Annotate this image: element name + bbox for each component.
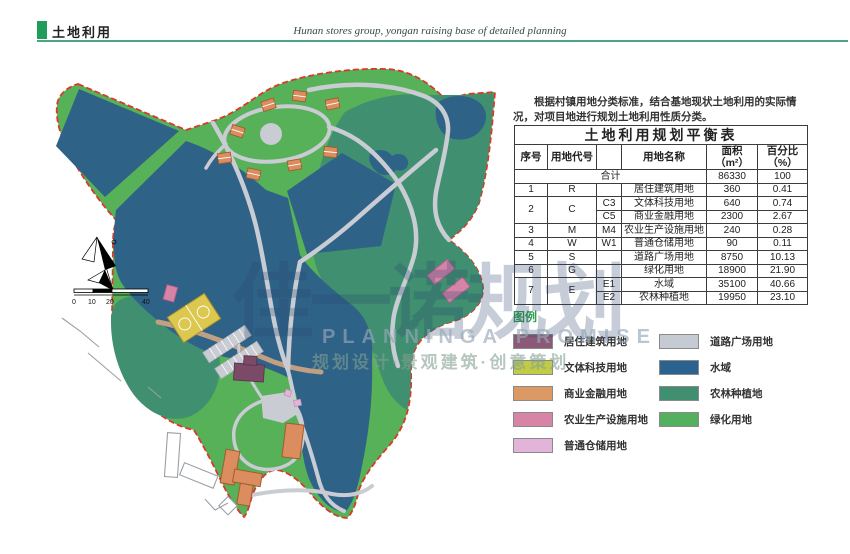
table-cell: 2 — [515, 197, 548, 224]
table-cell: E — [548, 278, 597, 305]
legend-label: 普通仓储用地 — [564, 438, 627, 453]
table-cell: 100 — [758, 170, 808, 184]
legend-swatch — [513, 412, 553, 427]
legend-title: 图例 — [513, 308, 537, 325]
legend-item: 农林种植地 — [659, 380, 773, 406]
table-cell: 640 — [707, 197, 758, 211]
table-cell: 40.66 — [758, 278, 808, 292]
table-cell: 10.13 — [758, 251, 808, 265]
table-cell: 道路广场用地 — [622, 251, 707, 265]
plaza-circle — [260, 123, 282, 145]
legend-label: 文体科技用地 — [564, 360, 627, 375]
balance-table: 土地利用规划平衡表序号用地代号用地名称面积（m²）百分比 （%）合计863301… — [514, 125, 808, 305]
legend-swatch — [659, 360, 699, 375]
table-cell: M — [548, 224, 597, 238]
legend-label: 农业生产设施用地 — [564, 412, 648, 427]
page-title: 土地利用 — [52, 22, 112, 41]
table-cell: 21.90 — [758, 264, 808, 278]
legend-swatch — [513, 386, 553, 401]
table-row: 合计86330100 — [515, 170, 808, 184]
table-cell: 居住建筑用地 — [622, 183, 707, 197]
scale-label: 40 — [142, 299, 150, 306]
legend-label: 居住建筑用地 — [564, 334, 627, 349]
table-cell: 文体科技用地 — [622, 197, 707, 211]
table-cell: 5 — [515, 251, 548, 265]
legend-item: 道路广场用地 — [659, 328, 773, 354]
table-cell: 合计 — [515, 170, 707, 184]
table-cell: 240 — [707, 224, 758, 238]
table-cell — [597, 264, 622, 278]
table-row: 3MM4农业生产设施用地2400.28 — [515, 224, 808, 238]
table-cell: 35100 — [707, 278, 758, 292]
legend-label: 水域 — [710, 360, 731, 375]
table-cell: G — [548, 264, 597, 278]
table-cell: C — [548, 197, 597, 224]
legend-item: 普通仓储用地 — [513, 432, 648, 458]
table-cell: 2300 — [707, 210, 758, 224]
legend-swatch — [659, 334, 699, 349]
legend-item: 农业生产设施用地 — [513, 406, 648, 432]
table-row: 7EE1水域3510040.66 — [515, 278, 808, 292]
table-cell — [597, 183, 622, 197]
table-cell: E1 — [597, 278, 622, 292]
column-header — [597, 145, 622, 170]
table-cell: 4 — [515, 237, 548, 251]
balance-table-grid: 土地利用规划平衡表序号用地代号用地名称面积（m²）百分比 （%）合计863301… — [514, 125, 808, 305]
scale-label: 10 — [88, 299, 96, 306]
table-cell: C3 — [597, 197, 622, 211]
legend-label: 绿化用地 — [710, 412, 752, 427]
column-header: 面积（m²） — [707, 145, 758, 170]
table-title: 土地利用规划平衡表 — [515, 126, 808, 145]
header-accent-square — [37, 21, 47, 39]
intro-paragraph: 根据村镇用地分类标准，结合基地现状土地利用的实际情况，对项目地进行规划土地利用性… — [513, 95, 805, 125]
table-row: 2CC3文体科技用地6400.74 — [515, 197, 808, 211]
header-rule — [37, 40, 848, 42]
legend-swatch — [513, 360, 553, 375]
legend-item: 居住建筑用地 — [513, 328, 648, 354]
table-cell: 农林种植地 — [622, 291, 707, 305]
legend-label: 农林种植地 — [710, 386, 763, 401]
legend-item: 绿化用地 — [659, 406, 773, 432]
column-header: 用地名称 — [622, 145, 707, 170]
scale-label: 20 — [106, 299, 114, 306]
table-cell: 90 — [707, 237, 758, 251]
table-row: 4WW1普通仓储用地900.11 — [515, 237, 808, 251]
table-cell: 18900 — [707, 264, 758, 278]
table-row: 5S道路广场用地875010.13 — [515, 251, 808, 265]
legend-swatch — [659, 412, 699, 427]
plan-sheet: { "header": { "title": "土地利用", "subtitle… — [0, 0, 850, 554]
legend-swatch — [513, 334, 553, 349]
table-cell: 水域 — [622, 278, 707, 292]
table-cell: 6 — [515, 264, 548, 278]
legend-swatch — [659, 386, 699, 401]
table-row: 6G绿化用地1890021.90 — [515, 264, 808, 278]
table-cell: 农业生产设施用地 — [622, 224, 707, 238]
column-header: 用地代号 — [548, 145, 597, 170]
table-cell: 19950 — [707, 291, 758, 305]
table-header-row: 序号用地代号用地名称面积（m²）百分比 （%） — [515, 145, 808, 170]
table-cell: R — [548, 183, 597, 197]
table-cell: 7 — [515, 278, 548, 305]
column-header: 序号 — [515, 145, 548, 170]
table-row: 1R居住建筑用地3600.41 — [515, 183, 808, 197]
legend-column-right: 道路广场用地水域农林种植地绿化用地 — [659, 328, 773, 432]
table-cell: 0.41 — [758, 183, 808, 197]
project-subtitle: Hunan stores group, yongan raising base … — [250, 25, 610, 37]
legend-item: 商业金融用地 — [513, 380, 648, 406]
table-cell: 普通仓储用地 — [622, 237, 707, 251]
table-cell: 86330 — [707, 170, 758, 184]
table-cell: M4 — [597, 224, 622, 238]
table-cell: W — [548, 237, 597, 251]
table-cell: 商业金融用地 — [622, 210, 707, 224]
table-cell — [597, 251, 622, 265]
table-cell: 绿化用地 — [622, 264, 707, 278]
column-header: 百分比 （%） — [758, 145, 808, 170]
table-cell: 1 — [515, 183, 548, 197]
table-cell: S — [548, 251, 597, 265]
table-cell: 2.67 — [758, 210, 808, 224]
table-cell: C5 — [597, 210, 622, 224]
scale-label: 0 — [72, 299, 76, 306]
table-cell: 0.11 — [758, 237, 808, 251]
north-arrow-icon — [82, 237, 116, 291]
table-cell: 8750 — [707, 251, 758, 265]
table-cell: W1 — [597, 237, 622, 251]
table-cell: 23.10 — [758, 291, 808, 305]
legend-item: 水域 — [659, 354, 773, 380]
table-cell: 360 — [707, 183, 758, 197]
table-cell: E2 — [597, 291, 622, 305]
table-cell: 0.74 — [758, 197, 808, 211]
legend-label: 道路广场用地 — [710, 334, 773, 349]
table-cell: 0.28 — [758, 224, 808, 238]
legend-swatch — [513, 438, 553, 453]
legend-column-left: 居住建筑用地文体科技用地商业金融用地农业生产设施用地普通仓储用地 — [513, 328, 648, 458]
legend-item: 文体科技用地 — [513, 354, 648, 380]
legend-label: 商业金融用地 — [564, 386, 627, 401]
table-cell: 3 — [515, 224, 548, 238]
